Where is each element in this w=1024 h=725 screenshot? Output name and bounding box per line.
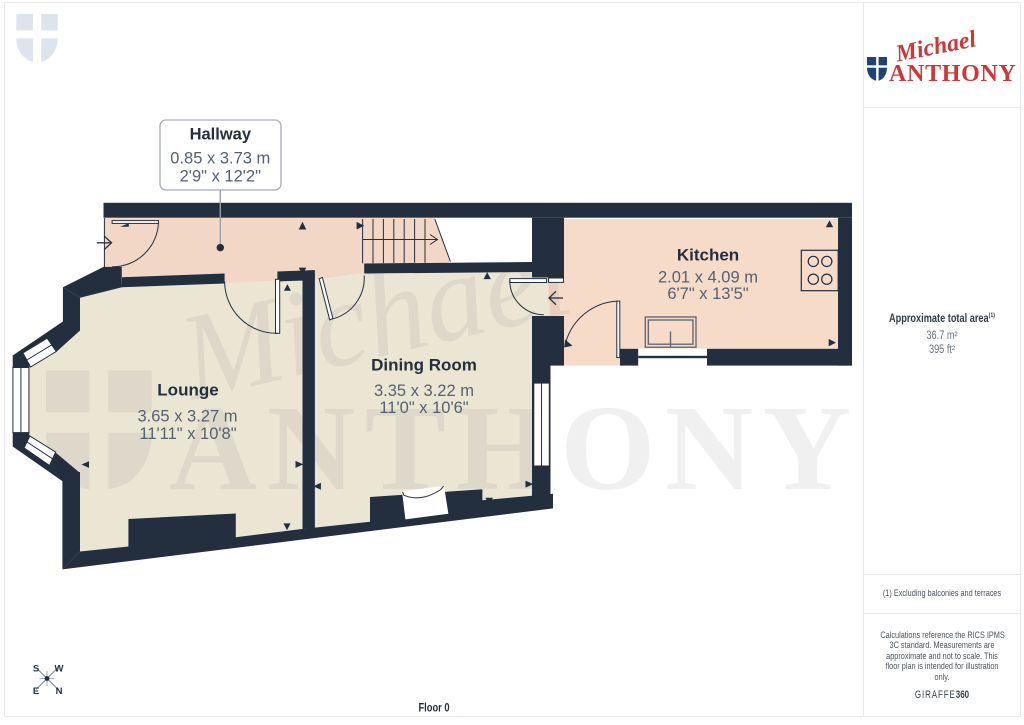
svg-text:2.01 x 4.09 m: 2.01 x 4.09 m — [658, 269, 758, 287]
svg-text:2'9" x 12'2": 2'9" x 12'2" — [180, 168, 261, 186]
svg-text:Floor 0: Floor 0 — [419, 703, 450, 715]
svg-text:6'7" x 13'5": 6'7" x 13'5" — [667, 285, 748, 303]
svg-text:Lounge: Lounge — [157, 381, 218, 400]
svg-text:N: N — [56, 686, 63, 697]
svg-text:W: W — [55, 664, 64, 675]
svg-text:11'11" x 10'8": 11'11" x 10'8" — [139, 425, 236, 443]
svg-text:3.35 x 3.22 m: 3.35 x 3.22 m — [374, 382, 474, 400]
svg-text:E: E — [33, 686, 39, 697]
svg-text:3.65 x 3.27 m: 3.65 x 3.27 m — [138, 407, 238, 425]
svg-text:Kitchen: Kitchen — [677, 245, 739, 264]
svg-text:ANTHONY: ANTHONY — [169, 381, 851, 516]
svg-text:0.85 x 3.73 m: 0.85 x 3.73 m — [170, 150, 270, 168]
svg-text:11'0" x 10'6": 11'0" x 10'6" — [379, 399, 468, 417]
svg-text:Dining Room: Dining Room — [371, 356, 477, 375]
svg-text:Hallway: Hallway — [190, 126, 252, 144]
svg-text:S: S — [33, 664, 39, 675]
